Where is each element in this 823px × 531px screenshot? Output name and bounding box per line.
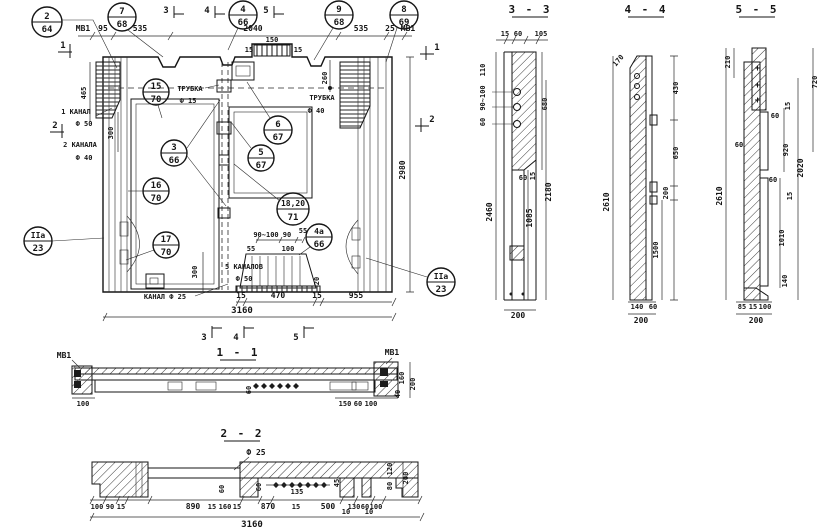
- svg-text:920: 920: [782, 144, 790, 157]
- svg-text:5: 5: [293, 333, 298, 343]
- svg-text:60: 60: [771, 112, 779, 120]
- section-4-4-title: 4 - 4: [624, 3, 667, 16]
- svg-text:90: 90: [106, 503, 114, 511]
- svg-text:Ф 50: Ф 50: [76, 120, 93, 128]
- svg-text:Ф 40: Ф 40: [308, 107, 325, 115]
- left-corbel: [96, 62, 120, 118]
- svg-text:470: 470: [271, 291, 286, 300]
- callout-2-64: 2 64: [32, 7, 117, 68]
- drawing-sheet: { "callouts": [ {"n":"2","d":"64"}, {"n"…: [0, 0, 823, 531]
- svg-text:10: 10: [342, 508, 350, 516]
- svg-text:95: 95: [98, 24, 108, 33]
- svg-text:90: 90: [283, 231, 291, 239]
- svg-text:IIа: IIа: [434, 272, 449, 281]
- s22-left-block: [92, 462, 148, 497]
- svg-text:15: 15: [208, 503, 216, 511]
- svg-text:300: 300: [191, 266, 199, 279]
- svg-text:2460: 2460: [485, 202, 494, 221]
- svg-text:100: 100: [77, 400, 90, 408]
- svg-text:18,20: 18,20: [281, 199, 305, 208]
- svg-text:2610: 2610: [602, 192, 611, 211]
- svg-text:70: 70: [151, 194, 162, 204]
- svg-text:15: 15: [292, 503, 300, 511]
- svg-text:5: 5: [263, 6, 268, 16]
- callout-18-20-71: 18,20 71: [234, 164, 309, 225]
- svg-text:200: 200: [409, 378, 417, 391]
- svg-text:67: 67: [256, 161, 267, 171]
- svg-text:40: 40: [394, 390, 402, 398]
- label-kanal-25: КАНАЛ Ф 25: [144, 293, 186, 301]
- svg-text:500: 500: [321, 502, 336, 511]
- svg-text:66: 66: [314, 240, 325, 250]
- svg-text:2: 2: [52, 121, 57, 131]
- section-1-1-title: 1 - 1: [216, 346, 259, 359]
- svg-text:535: 535: [133, 24, 148, 33]
- svg-text:60: 60: [255, 483, 263, 491]
- svg-text:300: 300: [107, 127, 115, 140]
- label-trubka-15: ТРУБКА: [177, 85, 203, 93]
- svg-text:20: 20: [313, 277, 321, 285]
- svg-text:110: 110: [479, 64, 487, 77]
- svg-text:120: 120: [386, 463, 394, 476]
- callout-9-68: 9 68: [314, 1, 353, 60]
- svg-text:60: 60: [218, 485, 226, 493]
- svg-text:170: 170: [611, 53, 625, 68]
- svg-text:7: 7: [119, 7, 124, 17]
- svg-text:5: 5: [258, 148, 263, 158]
- svg-text:200: 200: [402, 472, 410, 485]
- svg-text:15: 15: [117, 503, 125, 511]
- svg-text:70: 70: [151, 95, 162, 105]
- drawing-canvas: МВ1 95 535 2040 535 25 МВ1 15 150 15 260…: [0, 0, 823, 531]
- svg-text:200: 200: [749, 316, 764, 325]
- label-kanal-1: 1 КАНАЛ: [61, 108, 91, 116]
- svg-text:430: 430: [672, 82, 680, 95]
- svg-text:64: 64: [42, 25, 53, 35]
- svg-text:71: 71: [288, 213, 299, 223]
- svg-text:15: 15: [786, 192, 794, 200]
- svg-text:680: 680: [541, 98, 549, 111]
- svg-text:535: 535: [354, 24, 369, 33]
- svg-text:890: 890: [186, 502, 201, 511]
- svg-text:60: 60: [514, 30, 522, 38]
- label-trubka-40: ТРУБКА: [309, 94, 335, 102]
- svg-text:90~100: 90~100: [479, 85, 487, 110]
- callout-4-66: 4 66: [228, 1, 257, 50]
- svg-text:160: 160: [219, 503, 232, 511]
- section-3-3: 3 - 3 15 60 105 110 90~100 60 680 60 15 …: [479, 3, 553, 320]
- svg-text:9: 9: [336, 5, 341, 15]
- callout-IIa-23-right: IIа 23: [366, 258, 455, 296]
- svg-text:160: 160: [398, 372, 406, 385]
- svg-text:4а: 4а: [314, 227, 324, 236]
- svg-text:15: 15: [151, 82, 162, 92]
- svg-text:Ф 50: Ф 50: [236, 275, 253, 283]
- svg-text:135: 135: [291, 488, 304, 496]
- section-3-3-title: 3 - 3: [508, 3, 551, 16]
- svg-text:15: 15: [784, 102, 792, 110]
- svg-text:1: 1: [434, 43, 439, 53]
- svg-text:15: 15: [236, 291, 246, 300]
- svg-text:2980: 2980: [398, 160, 407, 179]
- svg-text:25: 25: [385, 24, 395, 33]
- svg-text:Ф 15: Ф 15: [180, 97, 197, 105]
- svg-text:140: 140: [631, 303, 644, 311]
- svg-text:15: 15: [312, 291, 322, 300]
- section-2-2-title: 2 - 2: [220, 427, 263, 440]
- svg-text:60: 60: [245, 386, 253, 394]
- svg-text:85: 85: [738, 303, 746, 311]
- svg-text:10: 10: [365, 508, 373, 516]
- top-key-block: [254, 45, 290, 56]
- svg-text:200: 200: [634, 316, 649, 325]
- svg-text:150: 150: [339, 400, 352, 408]
- svg-text:4: 4: [204, 6, 210, 16]
- svg-text:1: 1: [60, 41, 65, 51]
- svg-text:15: 15: [233, 503, 241, 511]
- svg-text:100: 100: [365, 400, 378, 408]
- svg-text:66: 66: [169, 156, 180, 166]
- svg-text:955: 955: [349, 291, 364, 300]
- svg-text:15: 15: [294, 46, 302, 54]
- svg-text:4: 4: [240, 5, 246, 15]
- svg-text:3: 3: [171, 143, 176, 153]
- svg-text:15: 15: [245, 46, 253, 54]
- callout-IIa-23-left: IIа 23: [24, 227, 104, 255]
- callout-6-67: 6 67: [247, 82, 292, 144]
- svg-text:100: 100: [282, 245, 295, 253]
- svg-text:68: 68: [334, 18, 345, 28]
- svg-text:3160: 3160: [231, 306, 253, 316]
- svg-text:6: 6: [275, 120, 280, 130]
- svg-text:105: 105: [535, 30, 548, 38]
- section-5-5: 5 - 5 210 720 15 60 60 920 2020 2610 60 …: [715, 3, 819, 325]
- section-5-5-title: 5 - 5: [735, 3, 778, 16]
- right-corbel: [340, 62, 370, 128]
- svg-text:3: 3: [201, 333, 206, 343]
- svg-text:17: 17: [161, 235, 172, 245]
- label-kanal-5: 5 КАНАЛОВ: [225, 263, 263, 271]
- label-mb1-s11-right: МВ1: [385, 348, 400, 357]
- svg-text:70: 70: [161, 248, 172, 258]
- svg-text:55: 55: [247, 245, 255, 253]
- callout-3-66: 3 66: [161, 100, 226, 206]
- svg-text:23: 23: [33, 244, 44, 254]
- svg-text:23: 23: [436, 285, 447, 295]
- svg-text:15: 15: [529, 172, 537, 180]
- label-f25: Ф 25: [246, 448, 265, 457]
- svg-text:90~100: 90~100: [253, 231, 278, 239]
- svg-text:15: 15: [749, 303, 757, 311]
- svg-text:200: 200: [511, 311, 526, 320]
- svg-text:67: 67: [273, 133, 284, 143]
- svg-text:8: 8: [401, 5, 406, 15]
- svg-text:1085: 1085: [525, 208, 534, 227]
- svg-text:100: 100: [91, 503, 104, 511]
- svg-text:2: 2: [44, 12, 49, 22]
- svg-text:66: 66: [238, 18, 249, 28]
- svg-text:3160: 3160: [241, 520, 263, 530]
- callout-5-67: 5 67: [231, 122, 274, 171]
- svg-text:870: 870: [261, 502, 276, 511]
- svg-text:2610: 2610: [715, 186, 724, 205]
- svg-text:60: 60: [769, 176, 777, 184]
- svg-text:15: 15: [501, 30, 509, 38]
- section-1-1: 1 - 1 МВ1 МВ1 100 60 150 60 100 160 40 2…: [57, 346, 417, 408]
- svg-text:465: 465: [80, 87, 88, 100]
- svg-text:60: 60: [649, 303, 657, 311]
- section-4-4: 4 - 4 170 430 650 200 1500 2610 140 60 2…: [602, 3, 680, 325]
- svg-text:16: 16: [151, 181, 162, 191]
- svg-text:260: 260: [321, 72, 329, 85]
- svg-text:2180: 2180: [544, 182, 553, 201]
- svg-text:60: 60: [519, 174, 527, 182]
- svg-text:60: 60: [735, 141, 743, 149]
- svg-text:210: 210: [724, 56, 732, 69]
- label-kanal-2: 2 КАНАЛА: [63, 141, 98, 149]
- callout-16-70: 16 70: [128, 178, 169, 204]
- svg-text:80: 80: [386, 482, 394, 490]
- svg-text:720: 720: [811, 76, 819, 89]
- svg-text:3: 3: [163, 6, 168, 16]
- svg-text:IIа: IIа: [31, 231, 46, 240]
- svg-text:2: 2: [429, 115, 434, 125]
- callout-17-70: 17 70: [126, 232, 179, 260]
- section-2-2: 2 - 2 Ф 25 60 60 135 45 100 90 15 890 15…: [90, 427, 424, 530]
- svg-text:68: 68: [117, 20, 128, 30]
- svg-text:4: 4: [233, 333, 239, 343]
- label-mb1-s11-left: МВ1: [57, 351, 72, 360]
- svg-text:60: 60: [354, 400, 362, 408]
- svg-text:1500: 1500: [652, 242, 660, 259]
- svg-text:150: 150: [266, 36, 279, 44]
- svg-text:650: 650: [672, 147, 680, 160]
- svg-text:140: 140: [781, 275, 789, 288]
- label-mb1-left: МВ1: [76, 24, 91, 33]
- svg-text:1010: 1010: [778, 230, 786, 247]
- svg-text:Ф 40: Ф 40: [76, 154, 93, 162]
- svg-text:45: 45: [333, 479, 341, 487]
- main-elevation-view: МВ1 95 535 2040 535 25 МВ1 15 150 15 260…: [24, 1, 455, 343]
- svg-text:69: 69: [399, 18, 410, 28]
- svg-text:60: 60: [479, 118, 487, 126]
- svg-text:200: 200: [662, 187, 670, 200]
- svg-text:100: 100: [759, 303, 772, 311]
- svg-text:2020: 2020: [796, 158, 805, 177]
